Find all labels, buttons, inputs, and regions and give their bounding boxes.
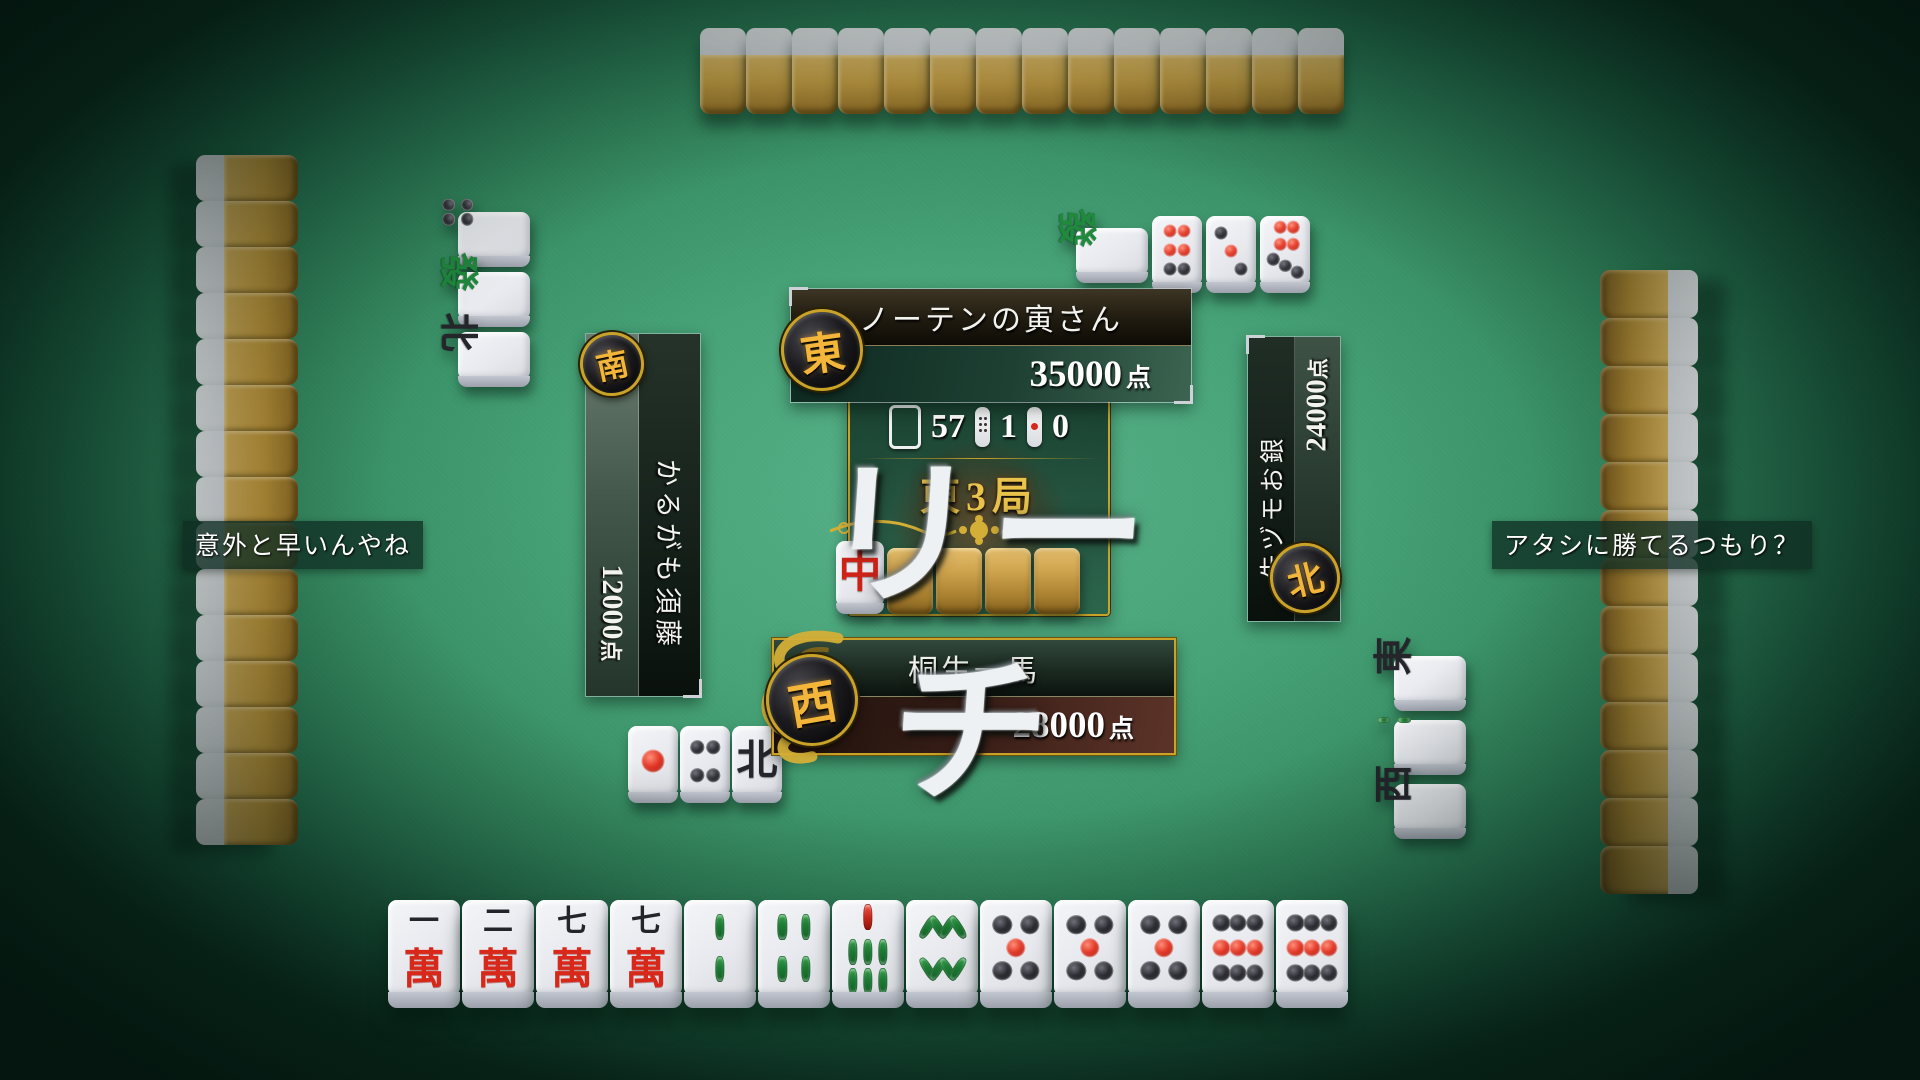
discard-tile-4p	[680, 726, 730, 803]
panel-corner-bracket	[683, 679, 702, 698]
wall-tile-back	[1114, 28, 1160, 114]
hand-tile-2s[interactable]	[684, 900, 756, 1008]
wall-tile-back	[792, 28, 838, 114]
speech-bubble-right: アタシに勝てるつもり？	[1492, 521, 1812, 569]
wall-tile-back	[1600, 606, 1698, 654]
wall-tile-back	[884, 28, 930, 114]
hand-tile-7s[interactable]	[832, 900, 904, 1008]
player-panel-left: 12000点 かるがも須藤 南	[585, 333, 701, 697]
wall-tile-back	[1600, 414, 1698, 462]
wall-tile-back	[1600, 702, 1698, 750]
wall-tile-back	[196, 569, 298, 615]
player-score-left: 12000点	[595, 564, 629, 661]
wall-tile-back	[1600, 798, 1698, 846]
discards-top-player: 發	[1076, 216, 1310, 293]
wall-tile-back	[976, 28, 1022, 114]
wall-tile-back	[1600, 654, 1698, 702]
discard-tile-north: 北	[458, 332, 530, 387]
wall-tile-back	[196, 293, 298, 339]
wall-tile-back	[196, 753, 298, 799]
wall-tile-back	[196, 431, 298, 477]
hand-tile-5p[interactable]	[1128, 900, 1200, 1008]
wall-tile-back	[700, 28, 746, 114]
wall-tile-back	[1600, 366, 1698, 414]
hand-tile-7m[interactable]: 七萬	[610, 900, 682, 1008]
hand-tile-2m[interactable]: 二萬	[462, 900, 534, 1008]
wall-top	[700, 28, 1344, 114]
player-score-right: 24000点	[1301, 358, 1334, 452]
wall-tile-back	[1206, 28, 1252, 114]
wall-tile-back	[1252, 28, 1298, 114]
hand-tile-5p[interactable]	[980, 900, 1052, 1008]
wall-tile-back	[838, 28, 884, 114]
wall-tile-back	[196, 799, 298, 845]
hand-tile-4s[interactable]	[758, 900, 830, 1008]
hand-tile-7m[interactable]: 七萬	[536, 900, 608, 1008]
wall-tile-back	[196, 385, 298, 431]
discard-tile-6p	[1152, 216, 1202, 293]
wall-tile-back	[1160, 28, 1206, 114]
discard-tile-west: 西	[1394, 784, 1466, 839]
hand-tile-8s[interactable]	[906, 900, 978, 1008]
hand-tile-9p[interactable]	[1276, 900, 1348, 1008]
wall-tile-back	[196, 155, 298, 201]
speech-bubble-left: 意外と早いんやね	[183, 521, 423, 569]
hand-tile-1m[interactable]: 一萬	[388, 900, 460, 1008]
discard-tile-7p	[1260, 216, 1310, 293]
wall-tile-back	[1068, 28, 1114, 114]
panel-corner-bracket	[1174, 385, 1193, 404]
wall-tile-back	[196, 247, 298, 293]
wall-tile-back	[1298, 28, 1344, 114]
riichi-banner: リーチ	[728, 438, 1236, 833]
discards-right-player: 東西	[1394, 656, 1466, 839]
wall-tile-back	[1600, 750, 1698, 798]
wall-tile-back	[1600, 846, 1698, 894]
wind-east-label: 東	[796, 315, 848, 385]
discards-left-player: 發北	[458, 212, 530, 387]
player-panel-top: 東 ノーテンの寅さん 35000点	[790, 288, 1192, 403]
wall-tile-back	[1600, 462, 1698, 510]
wall-tile-back	[1600, 318, 1698, 366]
wall-right	[1600, 270, 1698, 894]
wind-north-label: 北	[1281, 548, 1329, 607]
panel-corner-bracket	[1246, 335, 1265, 354]
wall-tile-back	[196, 339, 298, 385]
discard-tile-1p	[628, 726, 678, 803]
hand-tile-5p[interactable]	[1054, 900, 1126, 1008]
mahjong-table: 發 發北 東西 北 東 ノーテンの寅さん 35000点 西 桐生一馬 28000…	[0, 0, 1920, 1080]
wall-tile-back	[196, 615, 298, 661]
discard-tile-3p	[1206, 216, 1256, 293]
wind-south-label: 南	[592, 338, 633, 390]
player-hand: 一萬二萬七萬七萬	[388, 900, 1348, 1008]
wall-tile-back	[746, 28, 792, 114]
wall-tile-back	[930, 28, 976, 114]
wall-tile-back	[1022, 28, 1068, 114]
wall-tile-back	[196, 661, 298, 707]
wall-tile-back	[196, 477, 298, 523]
wall-tile-back	[196, 707, 298, 753]
hand-tile-9p[interactable]	[1202, 900, 1274, 1008]
player-name-left: かるがも須藤	[651, 459, 690, 651]
wall-tile-back	[196, 201, 298, 247]
wall-left	[196, 155, 298, 845]
player-panel-right: 先ヅモお銀 24000点 北	[1247, 336, 1341, 622]
panel-corner-bracket	[789, 287, 808, 306]
wall-tile-back	[1600, 270, 1698, 318]
discard-tile-green: 發	[1076, 228, 1148, 283]
